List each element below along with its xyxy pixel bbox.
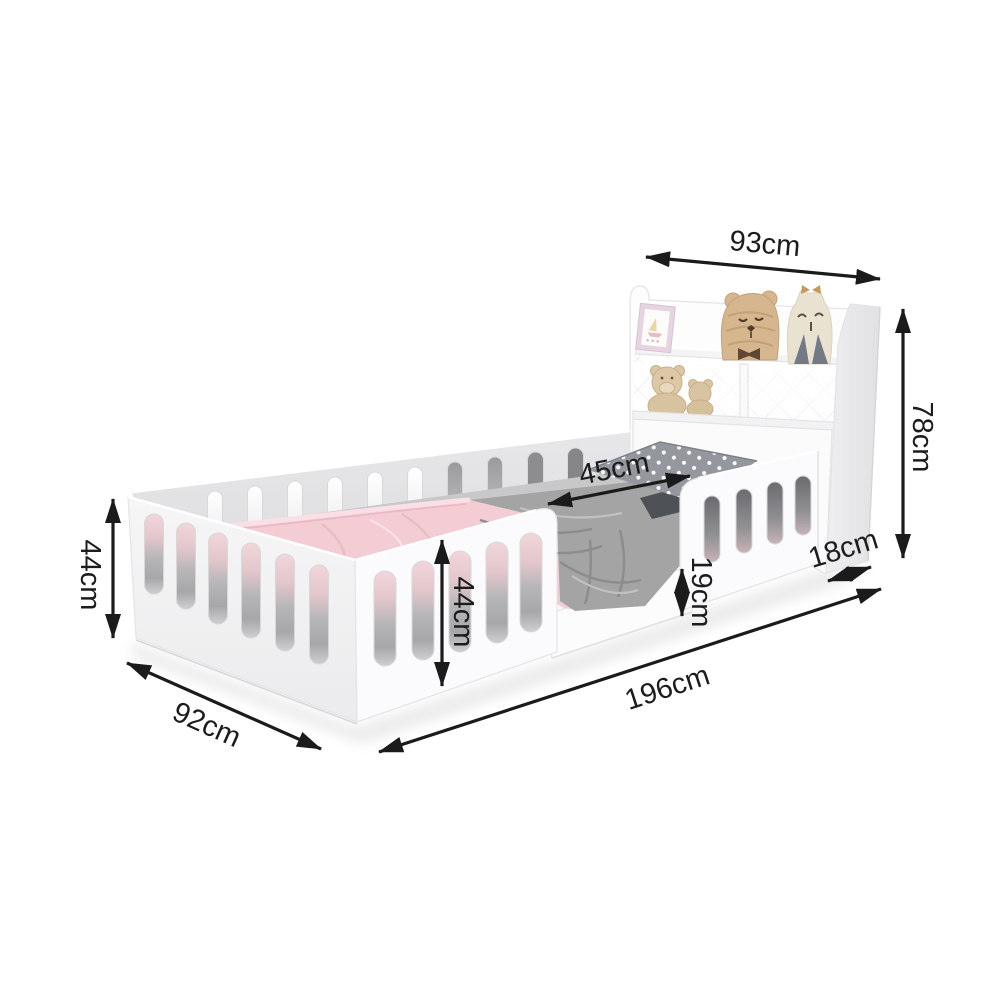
dim-platform-height: 19cm [682,557,717,628]
dim-headboard-width-label: 93cm [728,225,801,263]
dim-headboard-width: 93cm [646,225,880,279]
cat-pillow [787,285,832,364]
dim-headboard-width-arrow [646,257,880,279]
dim-foot-rail-height-label: 44cm [74,540,106,611]
dim-foot-rail-height: 44cm [74,499,113,638]
diagram-canvas: 93cm 78cm 44cm 92cm 45cm 44cm 19cm [0,0,1000,1000]
bed-dimension-diagram: 93cm 78cm 44cm 92cm 45cm 44cm 19cm [0,0,1000,1000]
dim-platform-height-label: 19cm [685,557,717,628]
dim-front-rail-height-label: 44cm [447,577,479,648]
picture-frame [636,303,676,352]
dim-headboard-height-label: 78cm [906,402,938,473]
dim-bed-width-label: 92cm [168,696,246,754]
bear-pillow [721,291,779,360]
dim-headboard-height: 78cm [903,309,938,558]
